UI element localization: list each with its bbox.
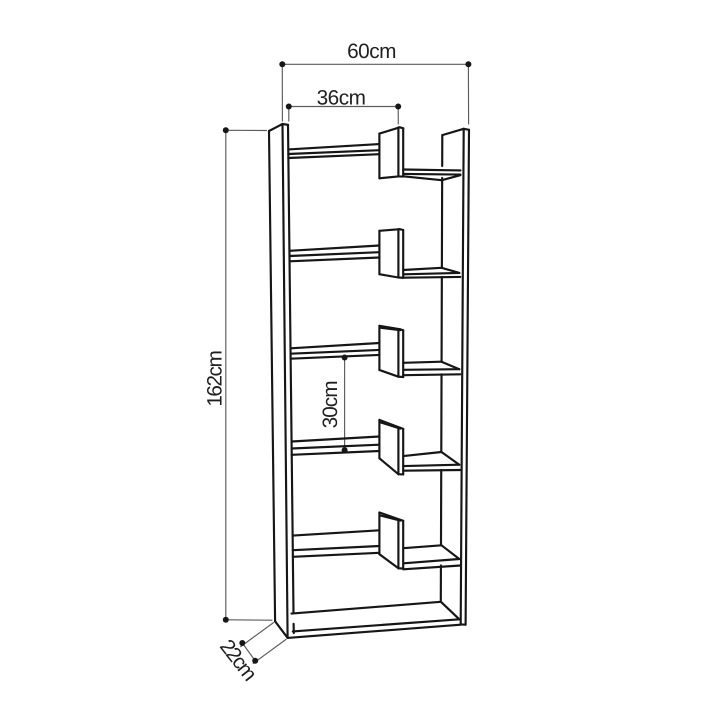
svg-text:30cm: 30cm <box>319 381 342 428</box>
svg-text:60cm: 60cm <box>347 40 396 63</box>
svg-text:36cm: 36cm <box>317 87 366 110</box>
svg-text:162cm: 162cm <box>203 352 226 407</box>
